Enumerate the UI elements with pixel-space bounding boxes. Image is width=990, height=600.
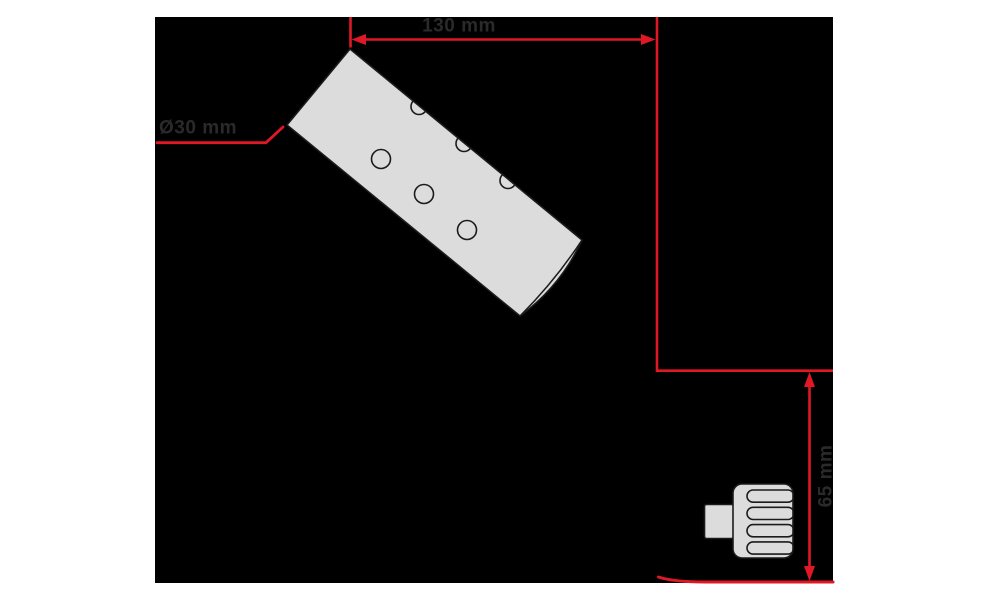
height-label: 65 mm <box>816 445 837 508</box>
page-background: 130 mm Ø30 mm 65 mm <box>0 0 990 600</box>
knob-body <box>733 484 793 558</box>
diagram-canvas <box>155 17 833 583</box>
knob-stem <box>705 505 734 539</box>
diameter-label: Ø30 mm <box>159 118 237 139</box>
length-label: 130 mm <box>422 16 496 37</box>
dimension-diagram: 130 mm Ø30 mm 65 mm <box>0 0 990 600</box>
